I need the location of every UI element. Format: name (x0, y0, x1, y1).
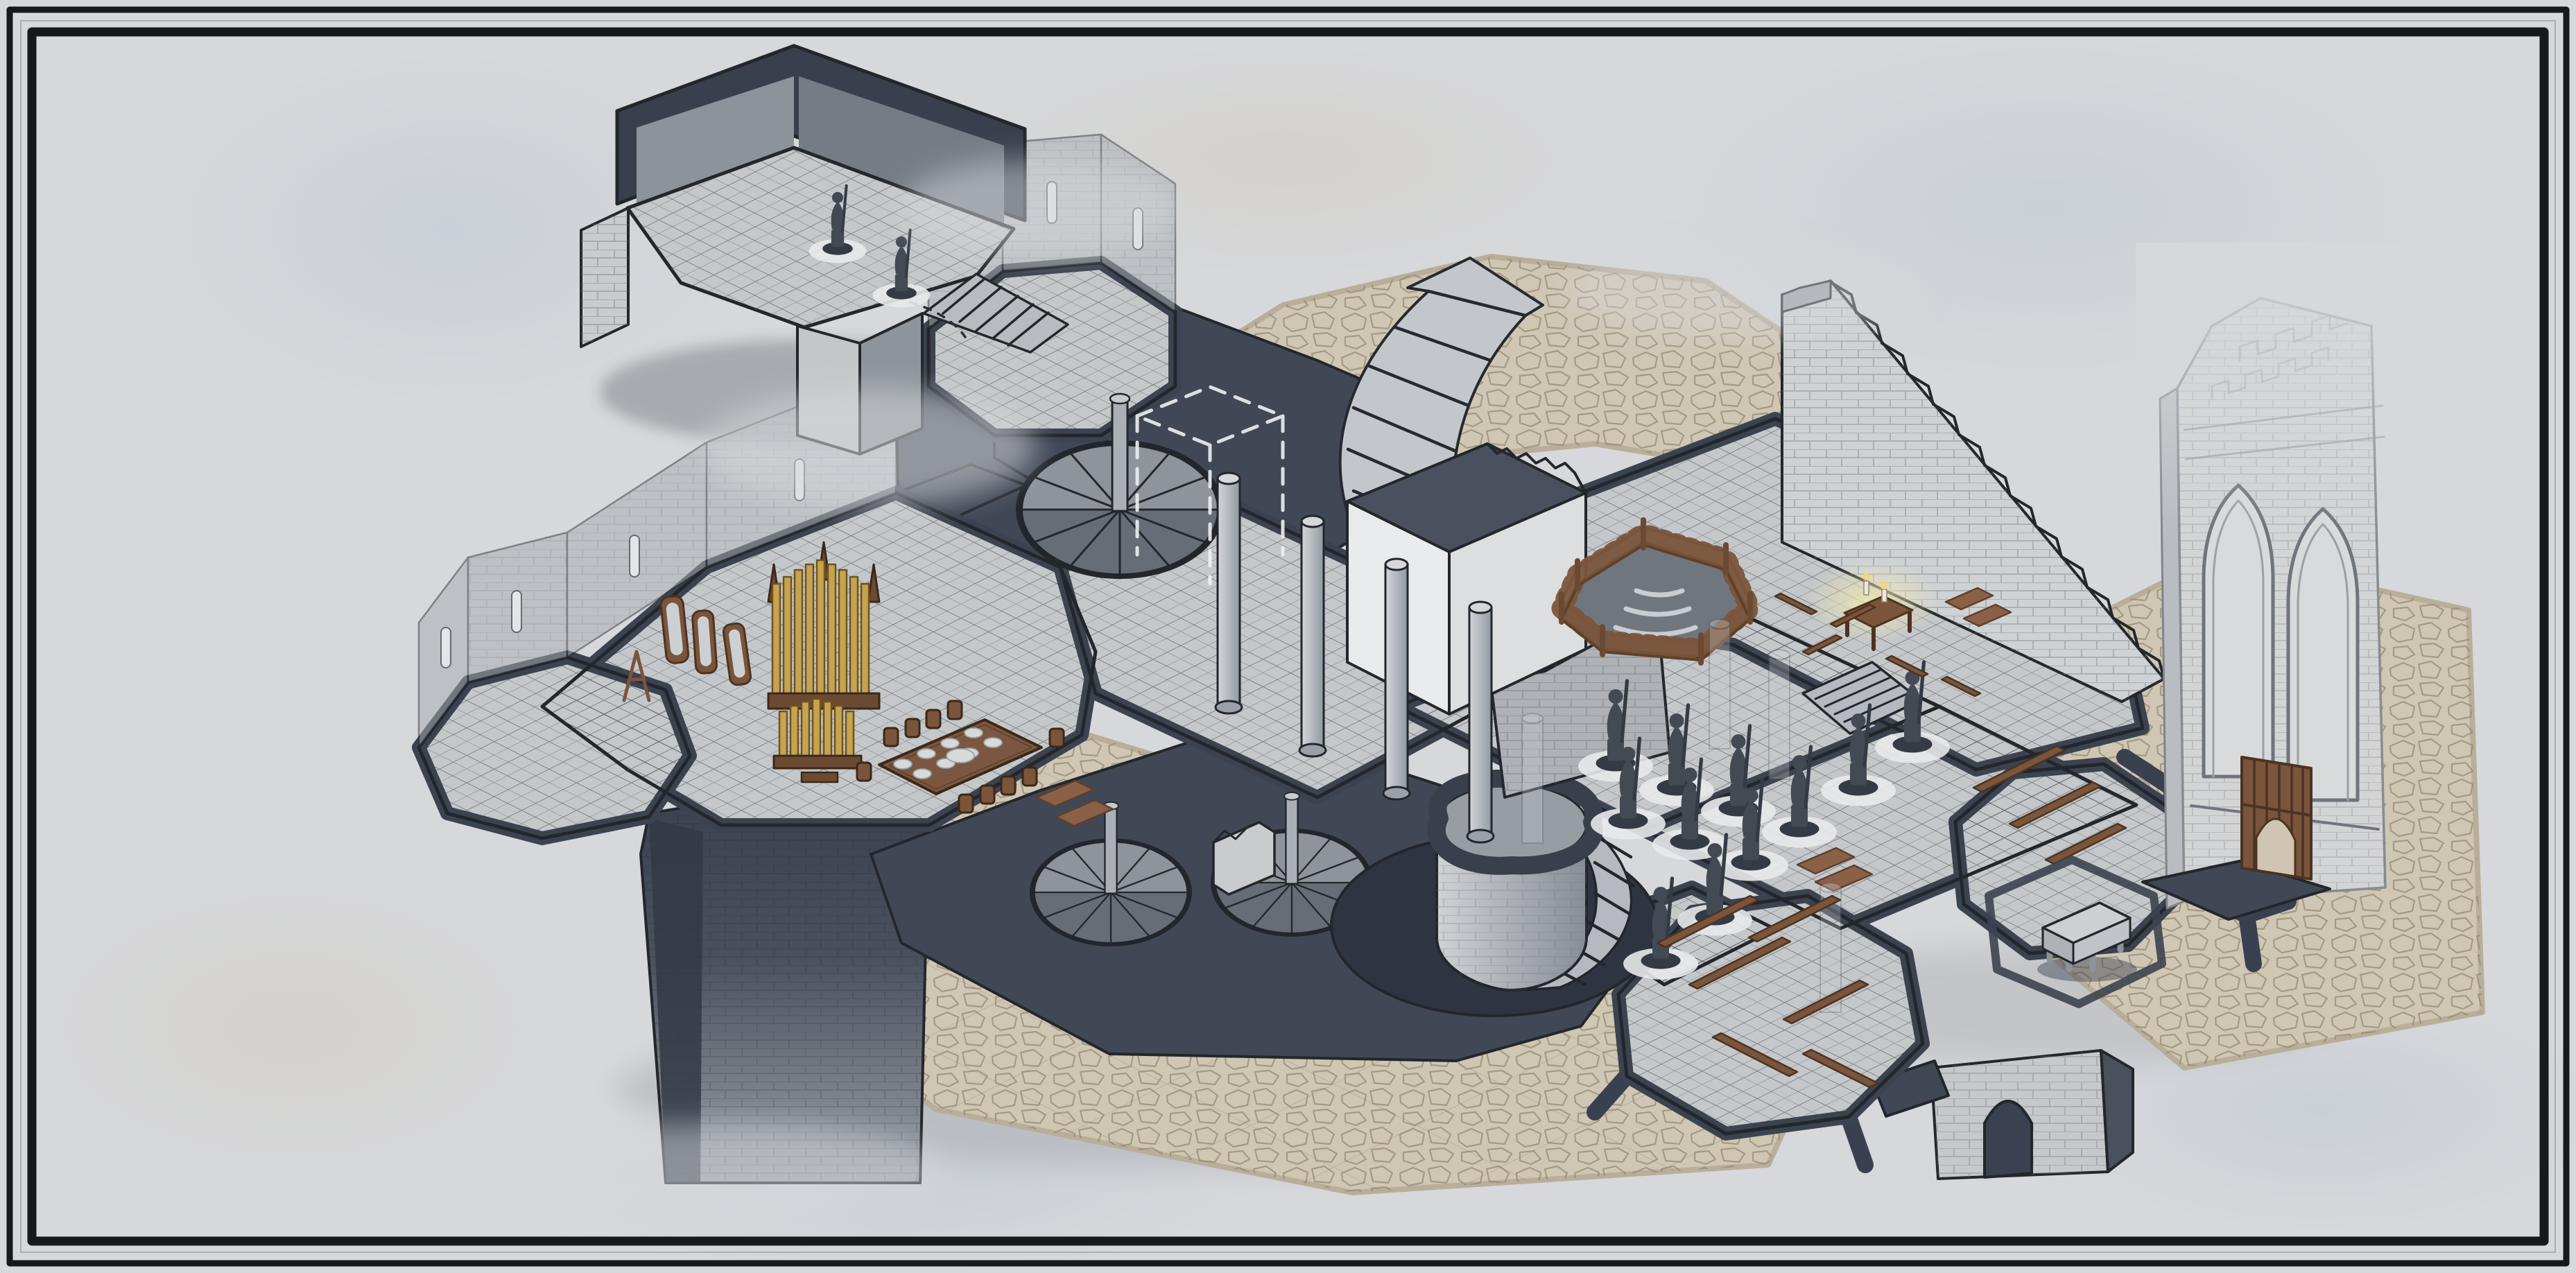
arch-block-side (2101, 1050, 2133, 1172)
organ-pipes-back (772, 560, 869, 693)
organ-pipes-front (779, 699, 854, 756)
map-stage (0, 0, 2576, 1273)
stone-column (1216, 473, 1242, 713)
ghost-column (1522, 713, 1543, 843)
candle-flame (1881, 582, 1887, 589)
candle (1864, 581, 1869, 595)
candle (1882, 589, 1887, 602)
slit-window (441, 627, 451, 668)
ghost-column (1769, 650, 1790, 779)
organ-console (774, 756, 861, 768)
mist-blob (1567, 243, 1928, 340)
arch-foundation (1931, 1050, 2133, 1179)
slit-window (630, 535, 639, 577)
fade-to-mist (2136, 243, 2455, 534)
slit-window (512, 591, 521, 632)
mist-blob (704, 388, 1037, 506)
ghost-column (1709, 619, 1730, 749)
stone-column (1467, 602, 1494, 842)
arch-opening (1985, 1101, 2032, 1177)
mist-blob (506, 1123, 950, 1220)
organ-bench (802, 772, 838, 782)
fragment-torn-wall-texture (581, 208, 628, 347)
isometric-dungeon-map (0, 0, 2576, 1273)
stone-column (1383, 559, 1410, 799)
stone-column (1299, 516, 1326, 756)
wash-blot (0, 860, 582, 1193)
mist-blob (901, 159, 1179, 257)
candle-flame (1862, 573, 1869, 580)
wooden-door (2242, 757, 2311, 879)
standing-mirror (692, 610, 717, 674)
